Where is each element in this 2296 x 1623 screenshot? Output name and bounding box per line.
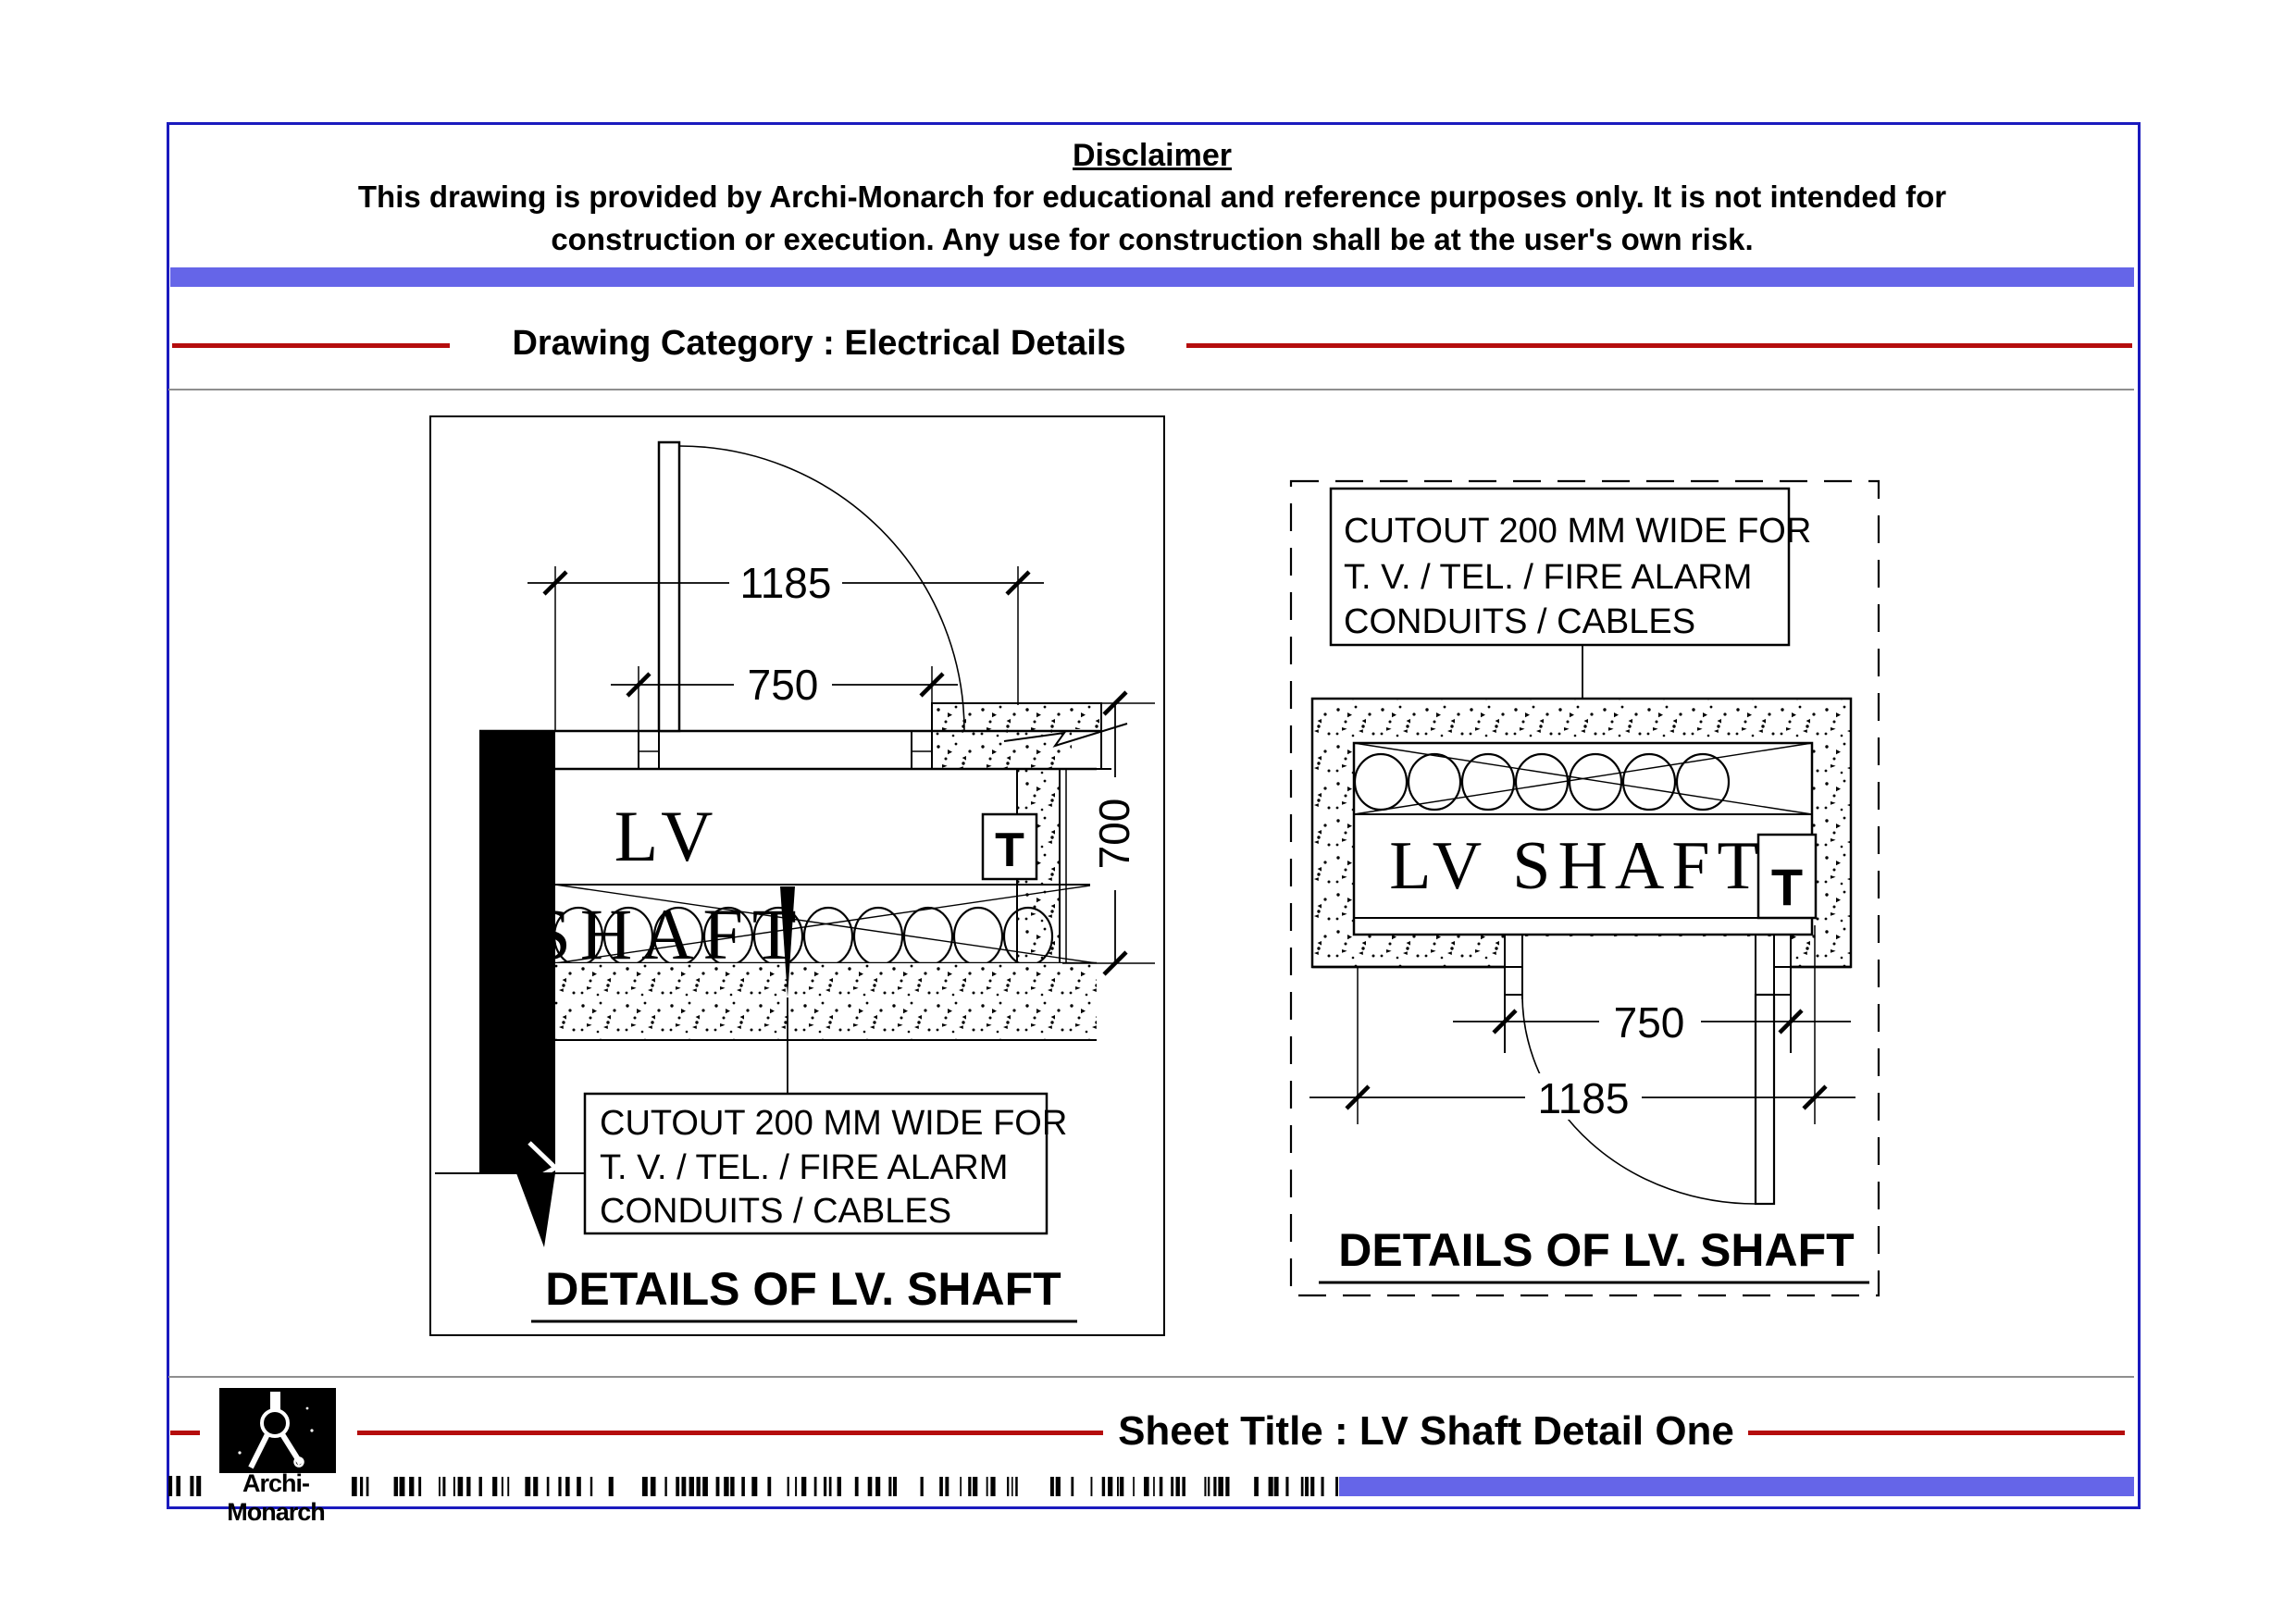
t-marker-left: T (983, 814, 1036, 879)
dim-text-1185: 1185 (740, 559, 832, 607)
svg-text:CUTOUT 200 MM WIDE FOR: CUTOUT 200 MM WIDE FOR (600, 1104, 1067, 1143)
door-below (1505, 935, 1791, 1204)
footer-separator (168, 1376, 2134, 1378)
right-detail-panel: CUTOUT 200 MM WIDE FOR T. V. / TEL. / FI… (1291, 481, 1879, 1295)
sheet-rule-left (357, 1431, 1103, 1435)
barcode (352, 1477, 1338, 1496)
concrete-slab-bottom (555, 963, 1097, 1040)
left-detail-panel: 1185 750 LV (430, 416, 1164, 1335)
sheet-rule-right (1748, 1431, 2125, 1435)
barcode-left-icon (168, 1476, 202, 1496)
sheet-title: Sheet Title : LV Shaft Detail One (1107, 1408, 1745, 1455)
cutout-note-left: CUTOUT 200 MM WIDE FOR T. V. / TEL. / FI… (585, 1094, 1067, 1233)
brand-label: Archi-Monarch (198, 1469, 354, 1527)
door-opening (1505, 936, 1791, 971)
cutout-note-right: CUTOUT 200 MM WIDE FOR T. V. / TEL. / FI… (1331, 489, 1811, 645)
dim-text-700: 700 (1090, 799, 1138, 870)
concrete-notch (1072, 729, 1100, 768)
sheet-rule-dash (170, 1431, 200, 1435)
archi-monarch-logo (219, 1388, 336, 1473)
dim-text-750: 750 (748, 661, 819, 709)
lv-shaft-drawings: 1185 750 LV (0, 0, 2296, 1623)
shaft-label-lv: LV (614, 796, 723, 876)
dim-text-750-right: 750 (1614, 998, 1685, 1047)
door-leaf (659, 442, 679, 731)
svg-text:T. V. / TEL. / FIRE ALARM: T. V. / TEL. / FIRE ALARM (600, 1148, 1008, 1187)
door-leaf-right (1756, 995, 1774, 1204)
t-marker-right: T (1758, 835, 1816, 918)
door-jambs (639, 731, 932, 769)
svg-text:CONDUITS / CABLES: CONDUITS / CABLES (1344, 602, 1695, 641)
svg-text:T: T (995, 824, 1024, 877)
shaft-label-right: LV SHAFT (1389, 828, 1766, 904)
bottom-blue-band (1339, 1477, 2134, 1496)
left-detail-title: DETAILS OF LV. SHAFT (545, 1263, 1061, 1315)
svg-text:T: T (1771, 858, 1803, 916)
dim-text-1185-right: 1185 (1538, 1074, 1630, 1122)
right-detail-title: DETAILS OF LV. SHAFT (1338, 1224, 1854, 1276)
svg-text:CONDUITS / CABLES: CONDUITS / CABLES (600, 1192, 951, 1231)
svg-text:CUTOUT 200 MM WIDE FOR: CUTOUT 200 MM WIDE FOR (1344, 512, 1811, 551)
svg-text:T. V. / TEL. / FIRE ALARM: T. V. / TEL. / FIRE ALARM (1344, 558, 1752, 597)
